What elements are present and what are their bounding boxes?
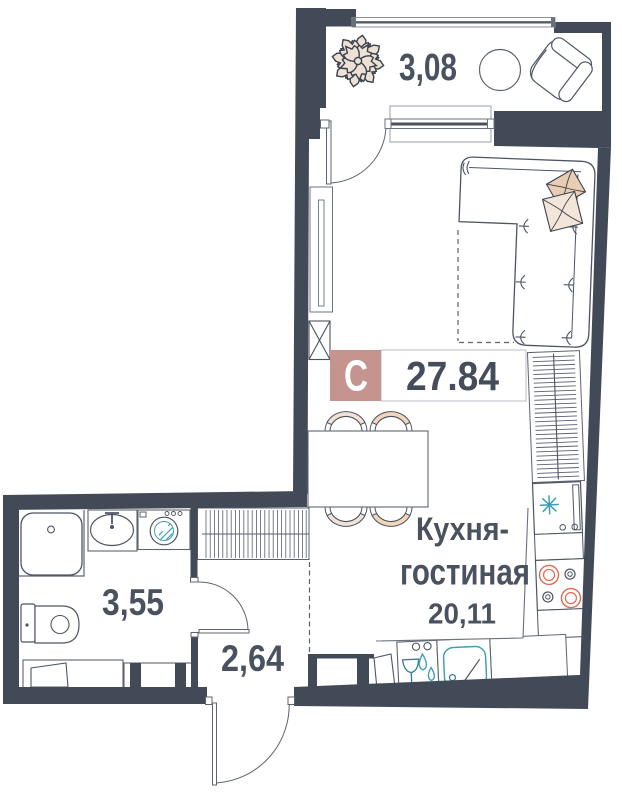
svg-text:20,11: 20,11 bbox=[428, 599, 496, 631]
svg-text:2,64: 2,64 bbox=[221, 638, 284, 679]
svg-text:Кухня-: Кухня- bbox=[416, 511, 509, 547]
svg-text:27.84: 27.84 bbox=[406, 353, 499, 399]
svg-text:С: С bbox=[344, 352, 368, 401]
svg-text:гостиная: гостиная bbox=[400, 552, 530, 593]
svg-text:3,55: 3,55 bbox=[102, 582, 164, 623]
svg-text:3,08: 3,08 bbox=[399, 47, 457, 89]
